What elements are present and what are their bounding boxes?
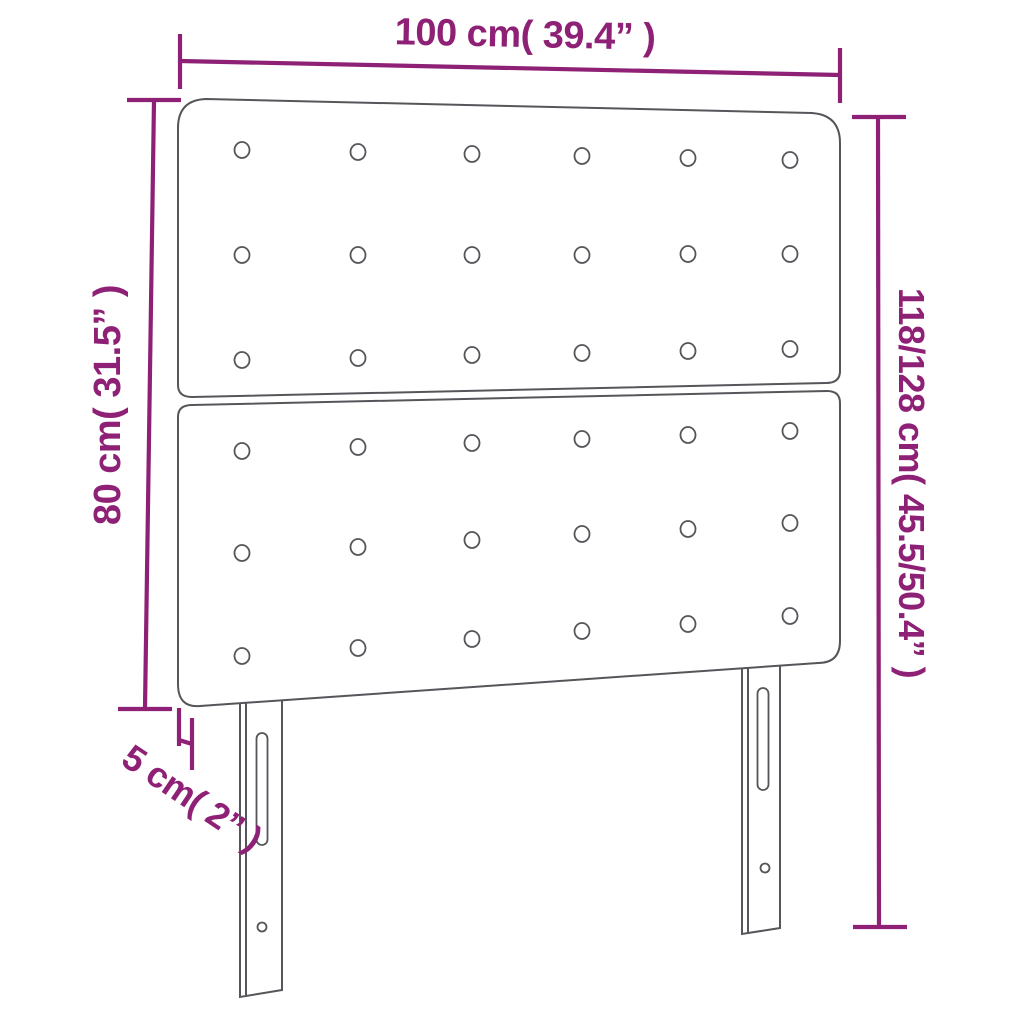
tufting-button — [575, 526, 590, 542]
tufting-button — [681, 246, 696, 262]
upper-panel — [178, 99, 840, 397]
tufting-button — [575, 345, 590, 361]
tufting-button — [681, 343, 696, 359]
tufting-button — [351, 144, 366, 160]
tufting-button — [575, 148, 590, 164]
tufting-button — [465, 532, 480, 548]
tufting-button — [465, 347, 480, 363]
dimension-diagram: 100 cm( 39.4” ) 80 cm( 31.5” ) 118/128 c… — [0, 0, 1024, 1024]
tufting-button — [351, 439, 366, 455]
panel-height-dimension-label: 80 cm( 31.5” ) — [87, 285, 129, 525]
width-dimension-label: 100 cm( 39.4” ) — [394, 11, 656, 58]
tufting-button — [235, 648, 250, 664]
tufting-button — [783, 608, 798, 624]
tufting-button — [235, 247, 250, 263]
tufting-button — [681, 150, 696, 166]
total-height-dimension-label: 118/128 cm( 45.5/50.4” ) — [891, 288, 932, 678]
tufting-button — [681, 521, 696, 537]
tufting-button — [465, 146, 480, 162]
panel-height-dimension-line — [145, 101, 154, 708]
tufting-button — [351, 350, 366, 366]
tufting-button — [235, 352, 250, 368]
width-dimension-line — [180, 61, 840, 75]
tufting-button — [783, 423, 798, 439]
tufting-button — [465, 435, 480, 451]
tufting-button — [351, 640, 366, 656]
tufting-button — [783, 246, 798, 262]
tufting-button — [575, 431, 590, 447]
tufting-button — [235, 443, 250, 459]
tufting-button — [575, 247, 590, 263]
total-height-dimension-line — [878, 117, 879, 926]
tufting-button — [235, 142, 250, 158]
tufting-button — [783, 515, 798, 531]
lower-panel — [178, 391, 840, 706]
headboard-drawing: 100 cm( 39.4” ) 80 cm( 31.5” ) 118/128 c… — [0, 0, 1024, 1024]
tufting-button — [465, 247, 480, 263]
tufting-button — [465, 631, 480, 647]
tufting-button — [351, 539, 366, 555]
tufting-button — [681, 616, 696, 632]
tufting-button — [681, 427, 696, 443]
tufting-button — [783, 341, 798, 357]
tufting-button — [575, 623, 590, 639]
right-leg — [742, 661, 780, 934]
tufting-button — [783, 152, 798, 168]
tufting-button — [235, 545, 250, 561]
tufting-button — [351, 247, 366, 263]
